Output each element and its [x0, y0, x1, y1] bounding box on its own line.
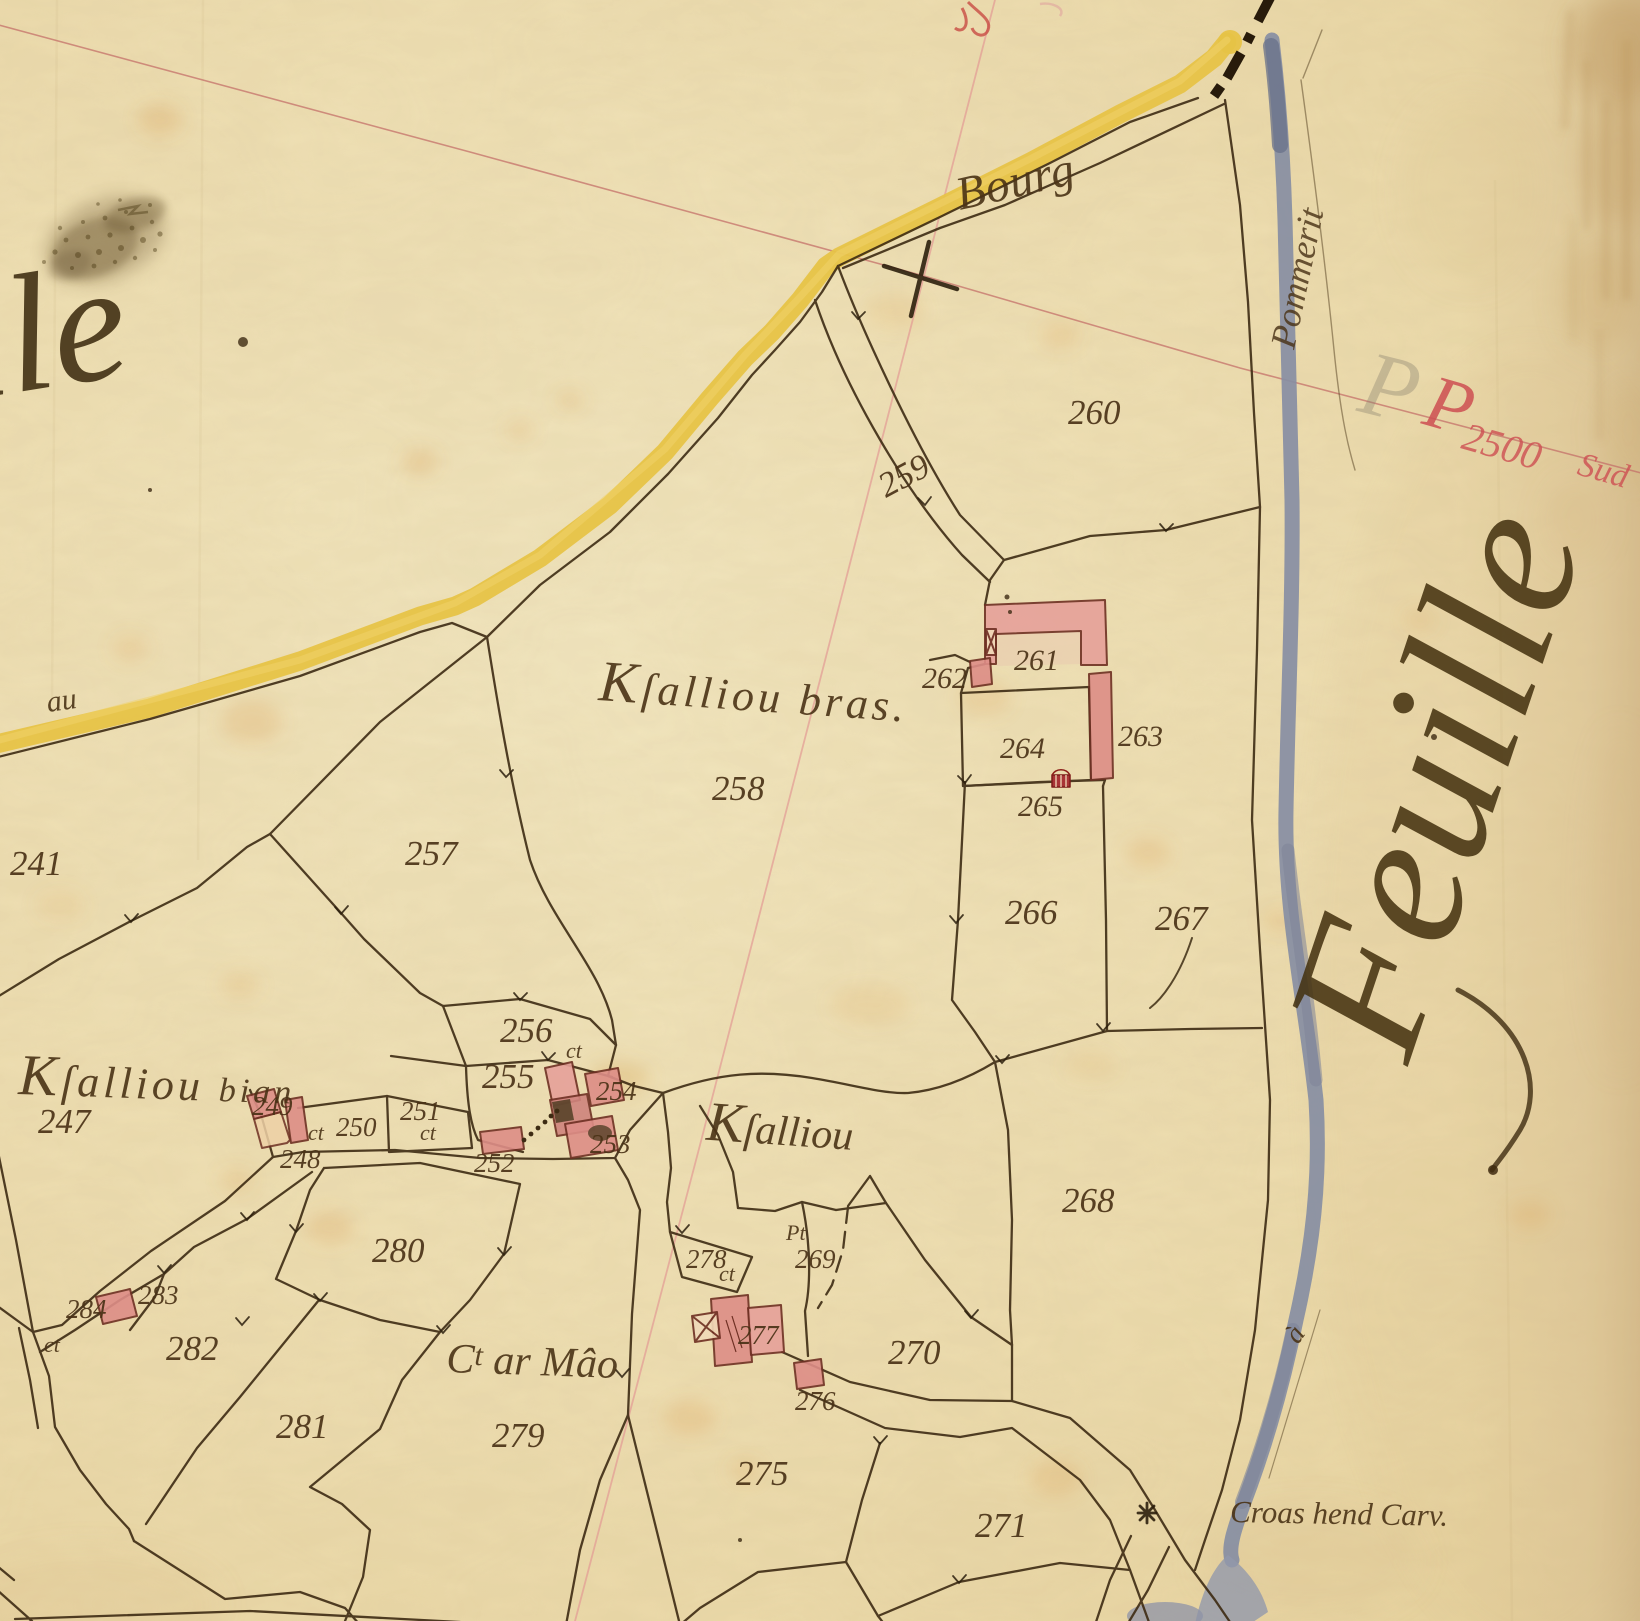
svg-text:247: 247 — [38, 1102, 92, 1141]
svg-text:262: 262 — [922, 662, 967, 695]
svg-text:255: 255 — [482, 1057, 535, 1096]
svg-text:256: 256 — [500, 1011, 553, 1050]
svg-text:258: 258 — [712, 769, 765, 808]
svg-text:280: 280 — [372, 1231, 425, 1270]
svg-text:ct: ct — [308, 1120, 325, 1145]
svg-text:263: 263 — [1118, 720, 1163, 753]
svg-text:267: 267 — [1155, 899, 1209, 938]
svg-text:279: 279 — [492, 1416, 545, 1455]
svg-text:257: 257 — [405, 834, 459, 873]
svg-text:271: 271 — [975, 1506, 1028, 1545]
svg-text:248: 248 — [280, 1144, 321, 1174]
svg-text:277: 277 — [738, 1320, 780, 1350]
svg-text:ct: ct — [566, 1038, 583, 1063]
svg-text:250: 250 — [336, 1112, 377, 1142]
svg-text:254: 254 — [596, 1076, 637, 1106]
svg-text:252: 252 — [474, 1148, 515, 1178]
svg-text:261: 261 — [1014, 644, 1059, 677]
svg-text:283: 283 — [138, 1280, 179, 1310]
svg-text:281: 281 — [276, 1407, 329, 1446]
svg-text:ct: ct — [420, 1120, 437, 1145]
svg-text:Croas hend Carv.: Croas hend Carv. — [1230, 1494, 1448, 1533]
svg-text:260: 260 — [1068, 393, 1121, 432]
svg-text:276: 276 — [795, 1386, 836, 1416]
svg-text:282: 282 — [166, 1329, 219, 1368]
svg-text:Ct ar Mâo: Ct ar Mâo — [446, 1336, 619, 1388]
svg-text:Pt: Pt — [785, 1220, 806, 1245]
svg-text:270: 270 — [888, 1333, 941, 1372]
svg-text:284: 284 — [66, 1294, 107, 1324]
svg-text:241: 241 — [10, 844, 63, 883]
svg-text:au: au — [44, 682, 78, 719]
svg-text:249: 249 — [252, 1091, 293, 1121]
svg-text:264: 264 — [1000, 732, 1045, 765]
svg-text:266: 266 — [1005, 893, 1058, 932]
svg-text:253: 253 — [590, 1129, 631, 1159]
svg-text:275: 275 — [736, 1454, 789, 1493]
svg-text:269: 269 — [795, 1244, 836, 1274]
svg-text:265: 265 — [1018, 790, 1063, 823]
svg-text:ct: ct — [719, 1261, 736, 1286]
svg-text:ct: ct — [44, 1332, 61, 1357]
svg-text:268: 268 — [1062, 1181, 1115, 1220]
